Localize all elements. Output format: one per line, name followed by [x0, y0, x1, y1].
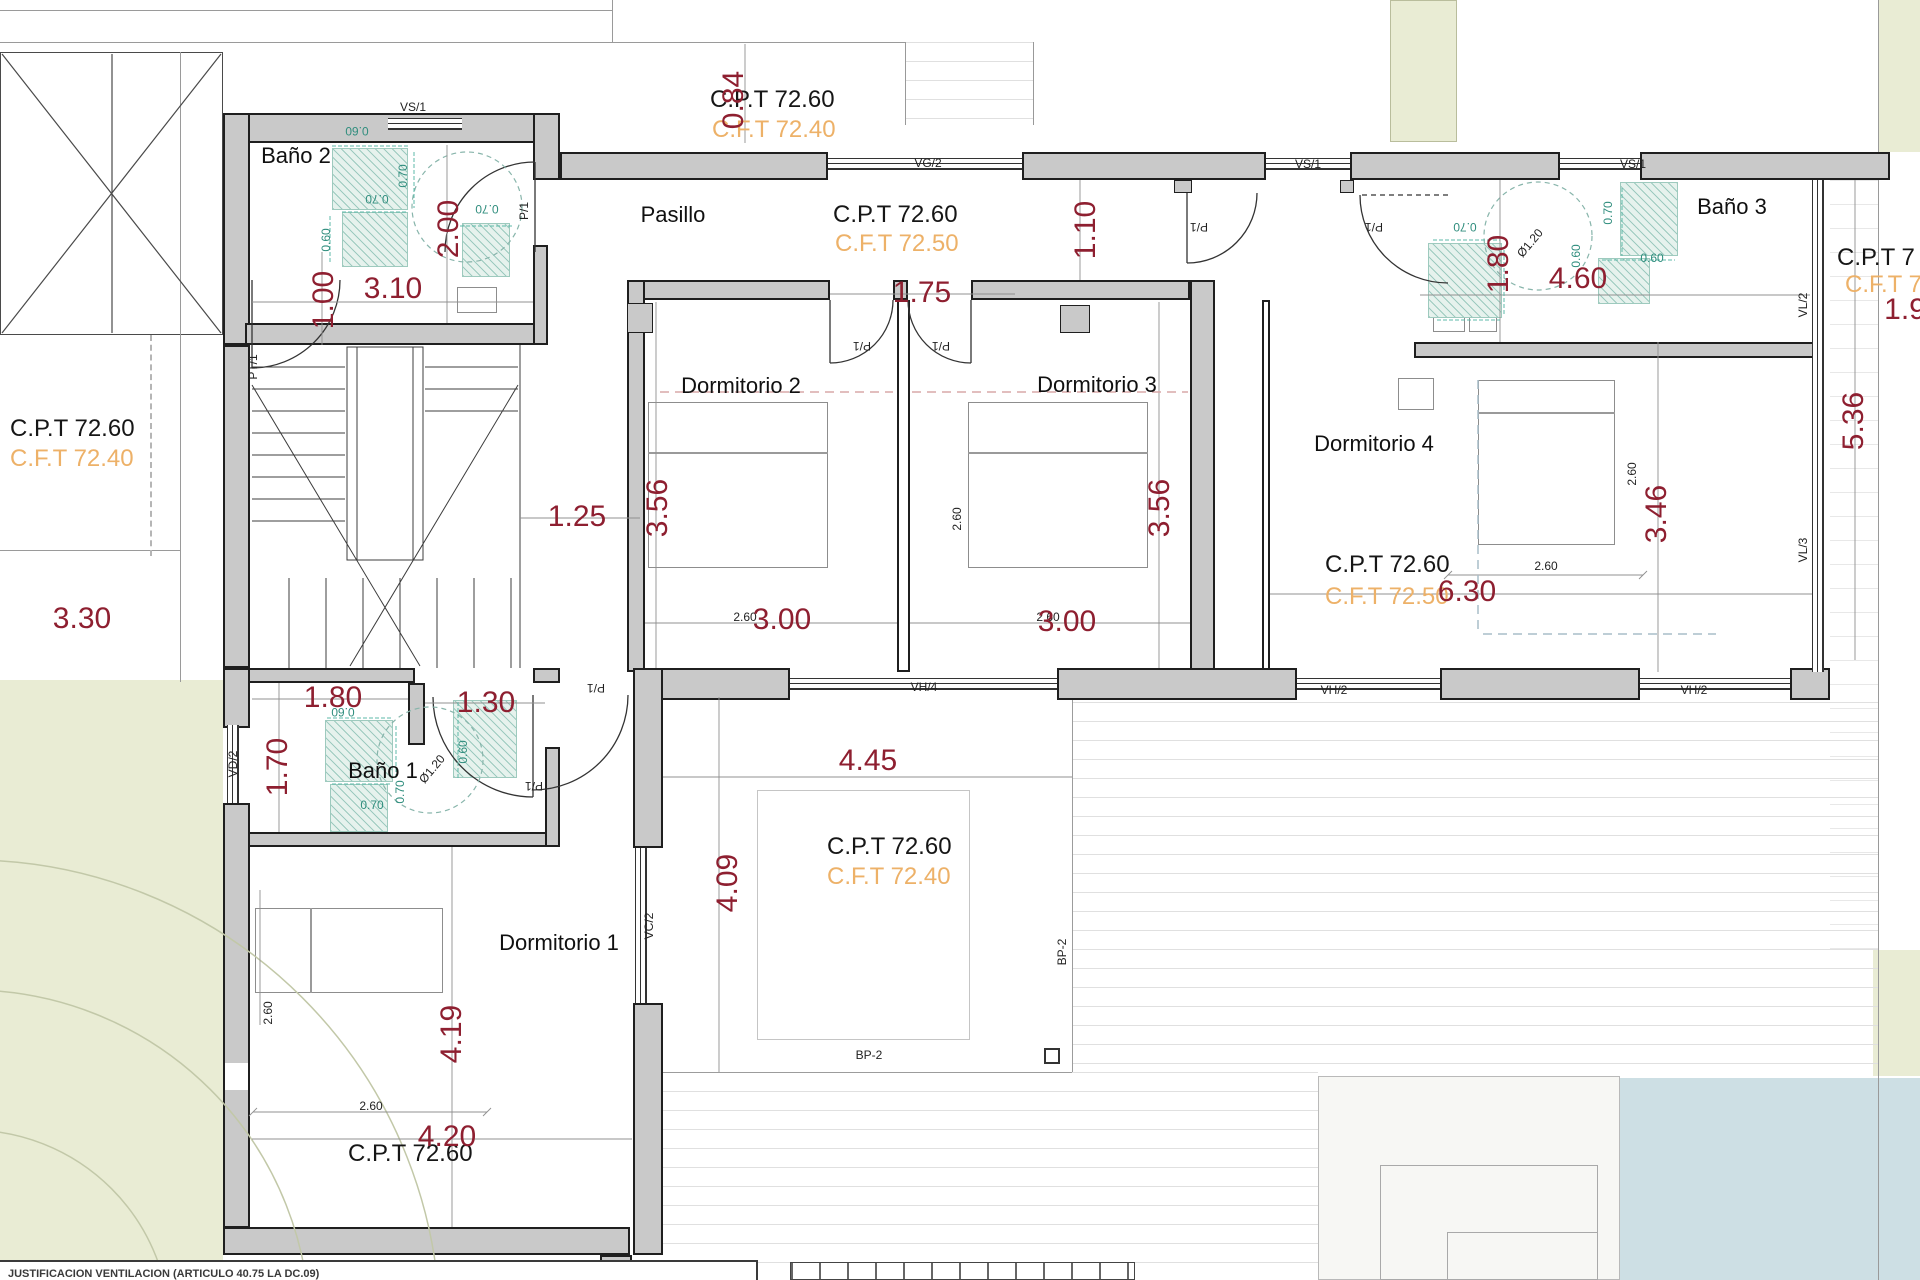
plan-linework [0, 0, 1920, 1280]
room-label-dorm4: Dormitorio 4 [1314, 431, 1434, 457]
dim-125: 1.25 [548, 500, 606, 534]
dim-070-b3b: 0.70 [1601, 201, 1615, 224]
garden-arcs [0, 860, 440, 1280]
dim-070-b1a: 0.70 [360, 798, 383, 812]
dim-060-b1b: 0.60 [456, 740, 470, 763]
level-cft-dorm4: C.F.T 72.50 [1325, 583, 1449, 611]
stairs [252, 345, 520, 668]
dim-180-bano1: 1.80 [304, 681, 362, 715]
dim-445: 4.45 [839, 744, 897, 778]
dim-060-b2b: 0.60 [319, 228, 333, 251]
dim-420: 4.20 [418, 1120, 476, 1154]
dim-200: 2.00 [432, 200, 466, 258]
dim-356-dorm2: 3.56 [641, 479, 675, 537]
level-cpt-left: C.P.T 72.60 [10, 415, 135, 443]
tag-p1-corridor: P/1 [1190, 220, 1208, 234]
dim-536: 5.36 [1837, 392, 1871, 450]
dim-070-b2a: 0.70 [396, 164, 410, 187]
level-cpt-right-cut: C.P.T 7 [1837, 244, 1915, 272]
dim-180-bano3: 1.80 [1482, 235, 1516, 293]
room-label-bano2: Baño 2 [261, 143, 331, 169]
dim-300-dorm3: 3.00 [1038, 605, 1096, 639]
tag-vs1-bano2: VS/1 [400, 100, 426, 114]
dim-330: 3.30 [53, 602, 111, 636]
tag-bp2-h: BP-2 [856, 1048, 883, 1062]
tag-vl3: VL/3 [1796, 538, 1810, 563]
turning-circles [377, 152, 1592, 813]
tag-bp2-v: BP-2 [1055, 939, 1069, 966]
section-dashes [660, 380, 1716, 634]
tag-vs1-right: VS/1 [1620, 157, 1646, 171]
level-cft-left: C.F.T 72.40 [10, 445, 134, 473]
level-cpt-dorm4: C.P.T 72.60 [1325, 551, 1450, 579]
fixture-dim-lines [327, 146, 1675, 784]
room-label-dorm2: Dormitorio 2 [681, 373, 801, 399]
dim-110: 1.10 [1069, 201, 1103, 259]
dim-084: 0.84 [717, 71, 751, 129]
room-label-pasillo: Pasillo [641, 202, 706, 228]
room-label-dorm3: Dormitorio 3 [1037, 372, 1157, 398]
tag-vc2: VC/2 [642, 913, 656, 940]
dim-130: 1.30 [457, 686, 515, 720]
dim-070-b2b: 0.70 [365, 192, 388, 206]
tag-p1-dorm2: P/1 [853, 339, 871, 353]
dim-346: 3.46 [1640, 485, 1674, 543]
dim-260-dorm1-w: 2.60 [359, 1099, 382, 1113]
level-cft-porch: C.F.T 72.40 [827, 863, 951, 891]
legend-note: JUSTIFICACION VENTILACION (ARTICULO 40.7… [8, 1268, 319, 1280]
tag-vh2-a: VH/2 [1321, 683, 1348, 697]
level-cft-pasillo: C.F.T 72.50 [835, 230, 959, 258]
room-label-bano3: Baño 3 [1697, 194, 1767, 220]
tag-p1-hall: P/1 [587, 681, 605, 695]
dim-060-b3a: 0.60 [1640, 251, 1663, 265]
dim-070-b1b: 0.70 [393, 780, 407, 803]
tag-vd2: VD/2 [226, 751, 240, 778]
tag-vl2: VL/2 [1796, 293, 1810, 318]
tag-vh4: VH/4 [911, 680, 938, 694]
skylight-cross [2, 54, 221, 333]
tag-p1-dorm3: P/1 [932, 339, 950, 353]
dim-460: 4.60 [1549, 262, 1607, 296]
dim-170: 1.70 [261, 738, 295, 796]
floor-plan: Baño 2 Pasillo Dormitorio 2 Dormitorio 3… [0, 0, 1920, 1280]
dim-100: 1.00 [307, 271, 341, 329]
dim-260-dorm4-bed: 2.60 [1625, 462, 1639, 485]
dim-630: 6.30 [1438, 575, 1496, 609]
tag-p1-bano2: P/1 [517, 202, 531, 220]
dim-260-dorm3-bed: 2.60 [950, 507, 964, 530]
dim-310: 3.10 [364, 272, 422, 306]
room-label-bano1: Baño 1 [348, 758, 418, 784]
tag-pt1: PT/1 [246, 354, 260, 379]
dim-175: 1.75 [893, 276, 951, 310]
dim-070-b3a: 0.70 [1453, 220, 1476, 234]
dim-260-dorm4-w: 2.60 [1534, 559, 1557, 573]
dim-19-cut: 1.9 [1884, 293, 1920, 327]
dim-300-dorm2: 3.00 [753, 603, 811, 637]
dim-419: 4.19 [435, 1005, 469, 1063]
level-cpt-porch: C.P.T 72.60 [827, 833, 952, 861]
scale-bar [790, 1262, 1135, 1280]
tag-vs1-mid: VS/1 [1295, 157, 1321, 171]
dim-409: 4.09 [711, 854, 745, 912]
tag-p1-bano1: P/1 [525, 779, 543, 793]
dim-260-dorm1-bed: 2.60 [261, 1001, 275, 1024]
room-label-dorm1: Dormitorio 1 [499, 930, 619, 956]
level-cpt-pasillo: C.P.T 72.60 [833, 201, 958, 229]
dim-356-dorm3: 3.56 [1143, 479, 1177, 537]
tag-vh2-b: VH/2 [1681, 683, 1708, 697]
dim-060-b2: 0.60 [345, 124, 368, 138]
tag-p1-vest: P/1 [1365, 220, 1383, 234]
dim-070-b2c: 0.70 [475, 202, 498, 216]
tag-vg2: VG/2 [914, 156, 941, 170]
